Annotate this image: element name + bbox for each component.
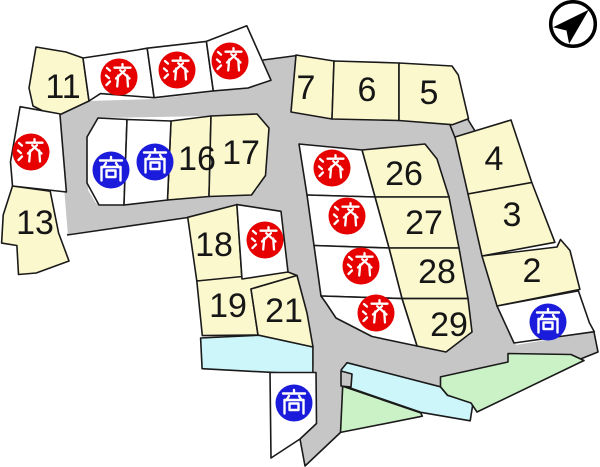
svg-text:13: 13 (16, 204, 54, 242)
svg-text:16: 16 (178, 140, 216, 178)
svg-text:27: 27 (405, 204, 443, 242)
svg-text:7: 7 (297, 69, 316, 107)
svg-text:17: 17 (222, 134, 260, 172)
svg-text:28: 28 (418, 253, 456, 291)
svg-text:3: 3 (503, 196, 522, 234)
svg-text:2: 2 (523, 252, 542, 290)
svg-text:11: 11 (45, 68, 80, 106)
svg-text:18: 18 (195, 226, 233, 264)
svg-text:29: 29 (430, 306, 468, 344)
svg-text:21: 21 (265, 292, 303, 330)
svg-text:26: 26 (385, 155, 423, 193)
svg-text:4: 4 (485, 140, 504, 178)
svg-text:5: 5 (420, 74, 439, 112)
svg-text:6: 6 (358, 71, 377, 109)
svg-text:19: 19 (209, 287, 247, 325)
